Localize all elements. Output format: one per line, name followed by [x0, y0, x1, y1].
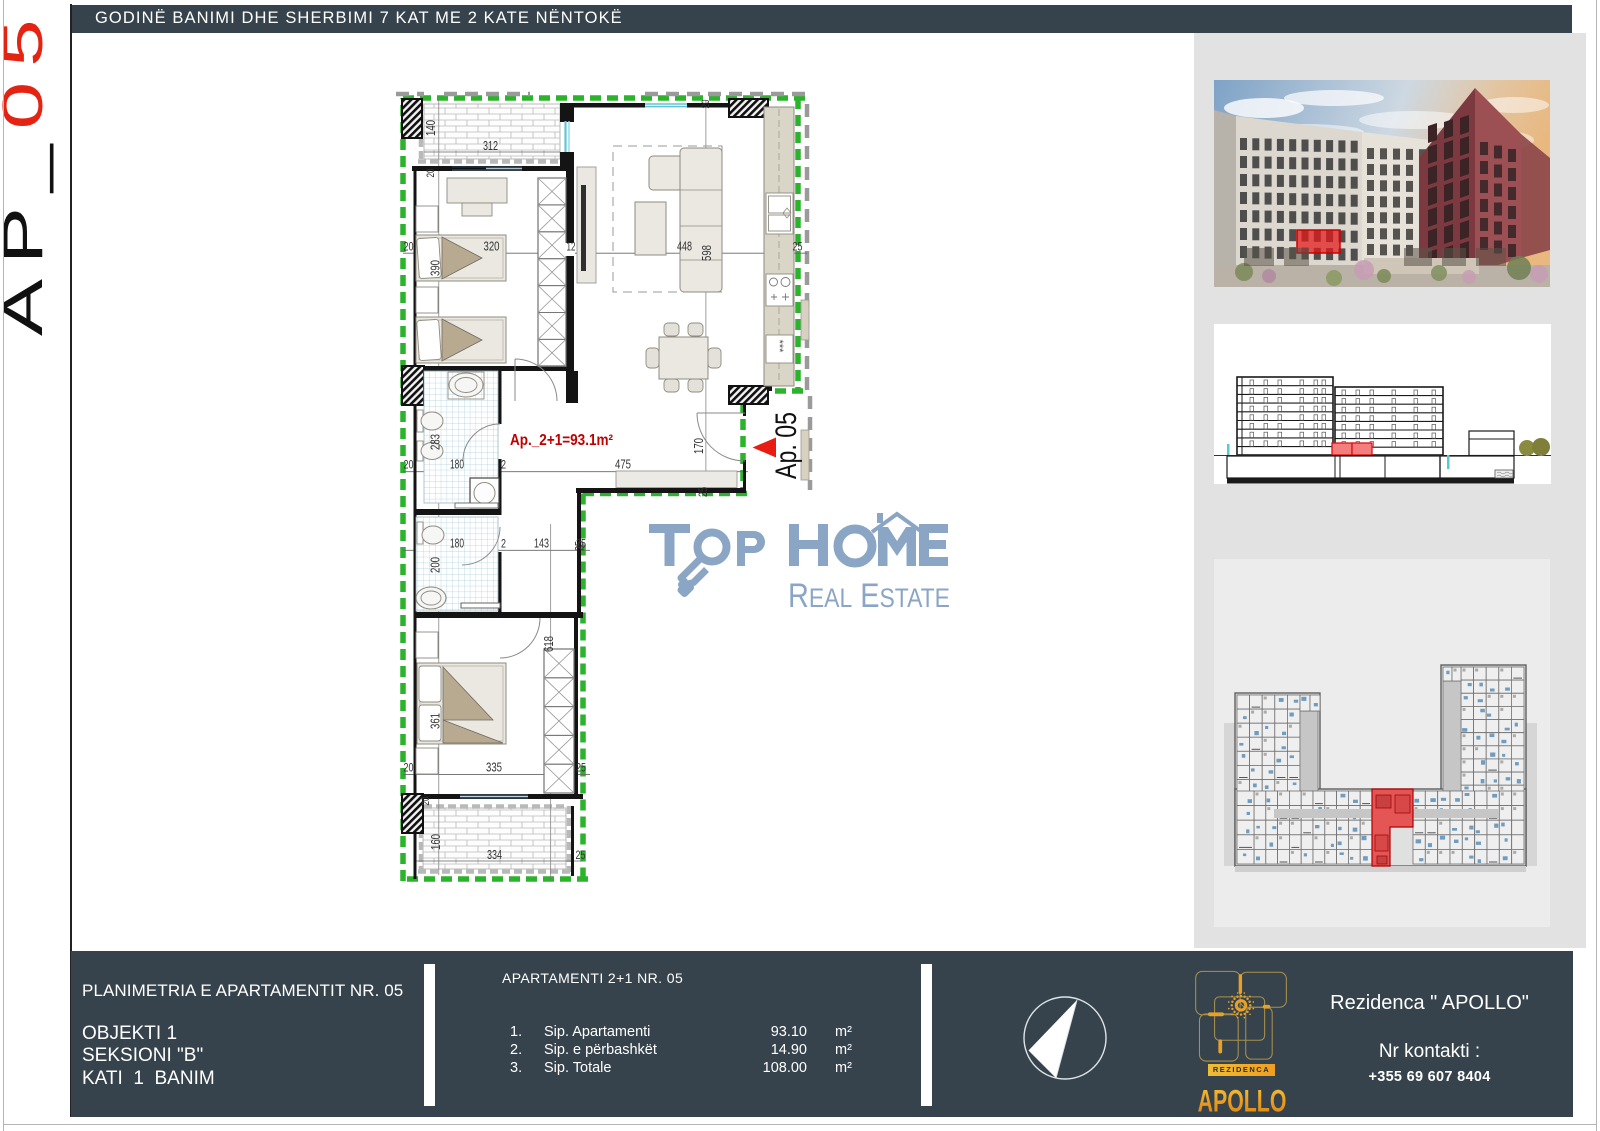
svg-text:12: 12 — [567, 240, 576, 254]
svg-text:25: 25 — [576, 761, 586, 775]
svg-text:618: 618 — [541, 636, 556, 652]
svg-text:25: 25 — [576, 848, 586, 862]
svg-text:334: 334 — [487, 847, 502, 862]
svg-text:25: 25 — [576, 537, 586, 551]
svg-text:25: 25 — [793, 240, 803, 254]
svg-text:598: 598 — [699, 245, 714, 261]
svg-text:335: 335 — [486, 760, 502, 775]
svg-text:Ap._2+1=93.1m²: Ap._2+1=93.1m² — [510, 432, 613, 449]
svg-text:475: 475 — [615, 457, 631, 472]
svg-text:20: 20 — [425, 169, 437, 178]
svg-text:143: 143 — [534, 536, 549, 551]
svg-text:361: 361 — [427, 713, 442, 729]
svg-text:20: 20 — [404, 458, 414, 472]
svg-text:180: 180 — [450, 536, 464, 551]
svg-text:20: 20 — [404, 240, 414, 254]
svg-text:20: 20 — [700, 100, 712, 109]
svg-text:***: *** — [773, 340, 785, 354]
svg-text:REAL ESTATE: REAL ESTATE — [788, 577, 950, 615]
svg-text:2: 2 — [501, 537, 506, 551]
svg-text:160: 160 — [428, 834, 443, 850]
svg-text:170: 170 — [691, 438, 706, 454]
svg-text:390: 390 — [427, 260, 442, 276]
svg-text:20: 20 — [420, 797, 432, 806]
svg-text:20: 20 — [404, 761, 414, 775]
svg-text:200: 200 — [427, 557, 442, 573]
svg-text:320: 320 — [484, 239, 500, 254]
svg-text:140: 140 — [423, 120, 438, 136]
svg-text:25: 25 — [696, 487, 710, 497]
svg-text:312: 312 — [483, 138, 498, 153]
svg-text:448: 448 — [677, 239, 692, 254]
svg-text:2: 2 — [501, 458, 506, 472]
svg-text:Ap. 05: Ap. 05 — [770, 412, 803, 479]
svg-text:283: 283 — [427, 434, 442, 450]
svg-text:180: 180 — [450, 457, 464, 472]
